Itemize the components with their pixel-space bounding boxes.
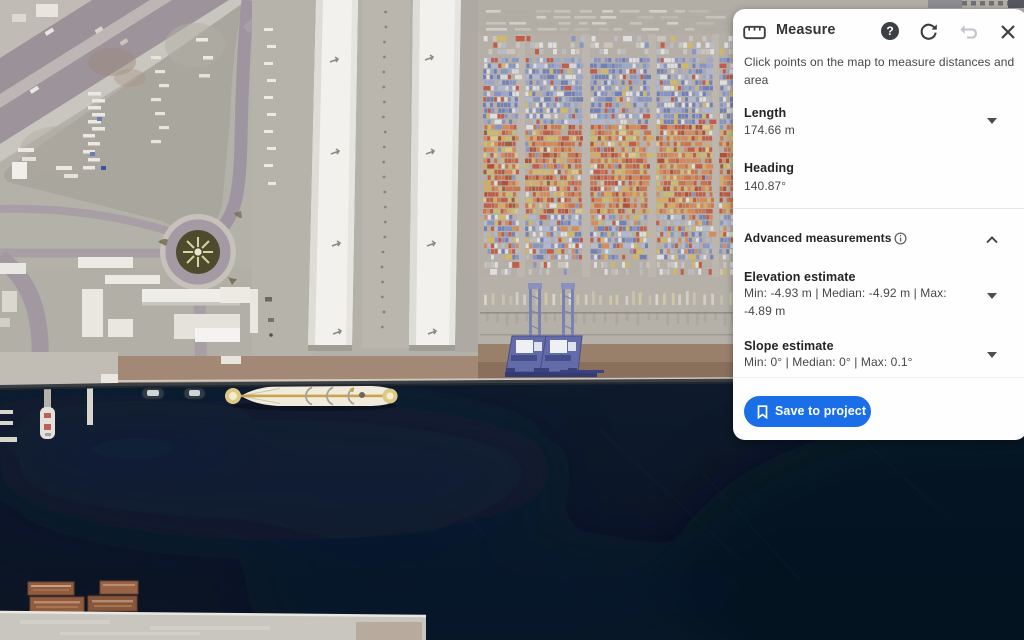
svg-text:?: ? [886,24,893,38]
